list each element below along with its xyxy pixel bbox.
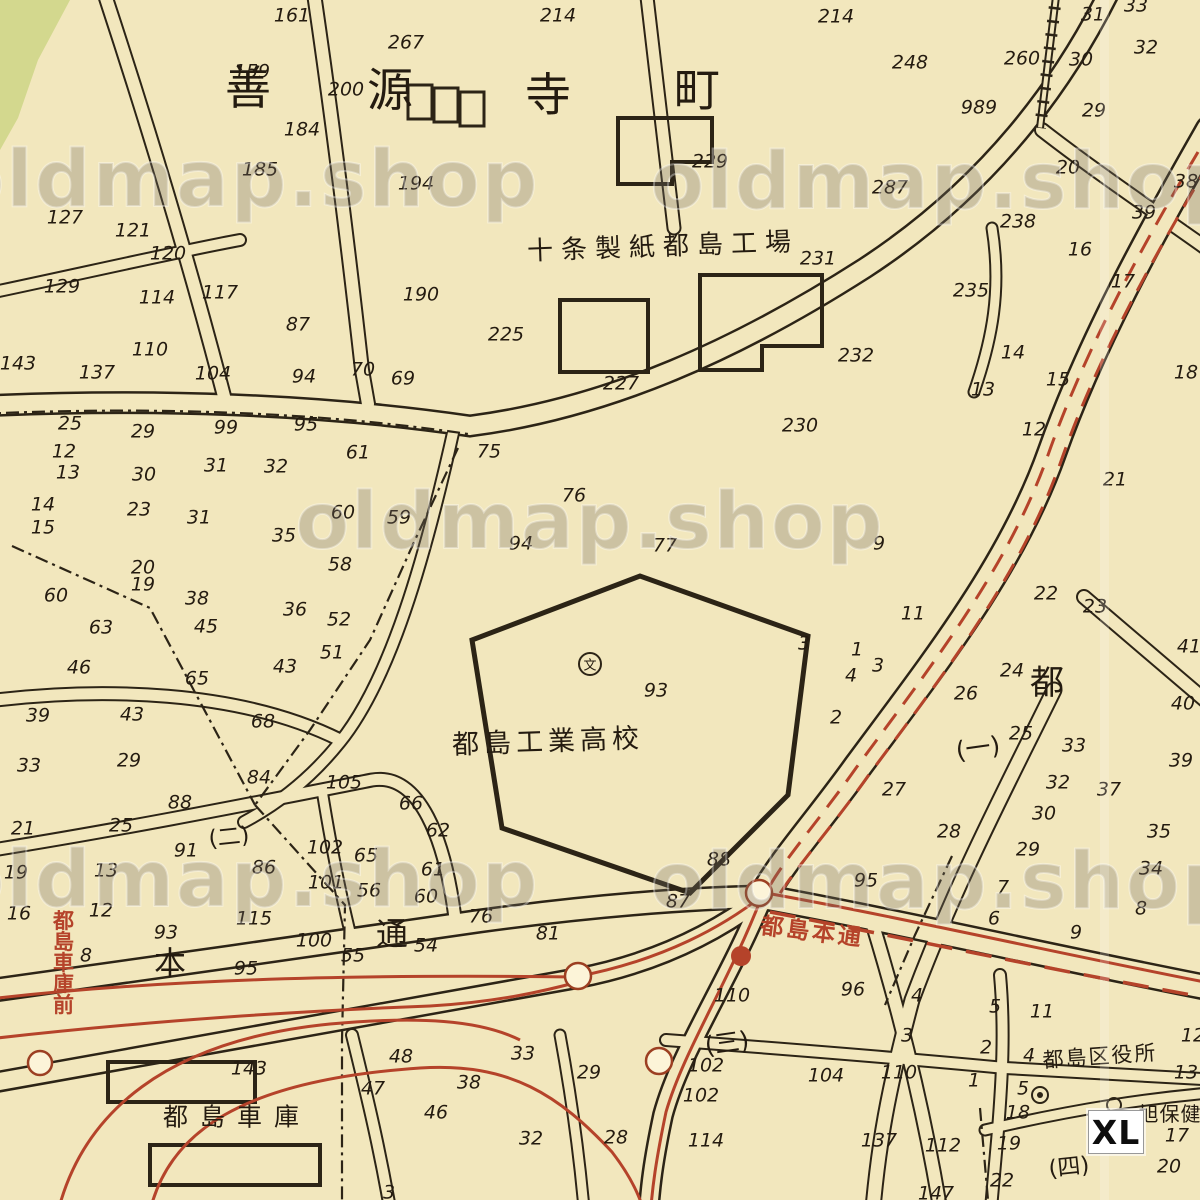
lot-number: 143 (231, 1060, 267, 1079)
lot-number: 96 (841, 981, 865, 1000)
lot-number: 81 (536, 925, 560, 944)
lot-number: 12 (52, 443, 76, 462)
lot-number: 230 (782, 417, 818, 436)
lot-number: 4 (1023, 1047, 1035, 1066)
lot-number: 102 (683, 1087, 719, 1106)
lot-number: 105 (326, 774, 362, 793)
lot-number: 27 (882, 781, 906, 800)
lot-number: 235 (953, 282, 989, 301)
place-label: 文 (583, 660, 596, 673)
lot-number: 110 (714, 987, 750, 1006)
lot-number: 24 (1000, 662, 1024, 681)
lot-number: 16 (1068, 241, 1092, 260)
lot-number: 63 (89, 619, 113, 638)
lot-number: 93 (644, 682, 668, 701)
lot-number: 20 (1157, 1158, 1181, 1177)
lot-number: 19 (131, 576, 155, 595)
lot-number: 110 (132, 341, 168, 360)
lot-number: 68 (251, 713, 275, 732)
lot-number: 110 (881, 1064, 917, 1083)
lot-number: 70 (351, 361, 375, 380)
lot-number: 28 (604, 1129, 628, 1148)
place-label: 都島工業高校 (452, 725, 645, 759)
lot-number: 66 (399, 795, 423, 814)
lot-number: 3 (383, 1184, 395, 1200)
lot-number: 30 (1069, 51, 1093, 70)
place-label: 寺 (525, 72, 571, 118)
lot-number: 23 (127, 501, 151, 520)
lot-number: 1 (851, 641, 863, 660)
lot-number: 100 (296, 932, 332, 951)
size-badge: XL (1088, 1110, 1144, 1154)
place-label: 旭保健 (1139, 1104, 1200, 1124)
lot-number: 4 (845, 667, 857, 686)
lot-number: 69 (391, 370, 415, 389)
lot-number: 13 (971, 381, 995, 400)
lot-number: 129 (44, 278, 80, 297)
lot-number: 14 (1001, 344, 1025, 363)
lot-number: 95 (294, 416, 318, 435)
lot-number: 30 (1032, 805, 1056, 824)
lot-number: 15 (31, 519, 55, 538)
lot-number: 214 (818, 8, 854, 27)
lot-number: 84 (247, 769, 271, 788)
place-label: (三) (703, 1028, 751, 1059)
place-label: 善 (225, 65, 271, 111)
lot-number: 33 (1062, 737, 1086, 756)
lot-number: 17 (1111, 273, 1135, 292)
lot-number: 29 (577, 1064, 601, 1083)
lot-number: 200 (328, 81, 364, 100)
lot-number: 40 (1171, 695, 1195, 714)
lot-number: 11 (901, 605, 925, 624)
lot-number: 95 (234, 960, 258, 979)
lot-number: 267 (388, 34, 424, 53)
lot-number: 39 (1169, 752, 1193, 771)
lot-number: 33 (17, 757, 41, 776)
lot-number: 137 (861, 1132, 897, 1151)
place-label: 本 (154, 947, 186, 979)
lot-number: 94 (292, 368, 316, 387)
lot-number: 39 (26, 707, 50, 726)
watermark: oldmap.shop (651, 843, 1200, 921)
lot-number: 112 (925, 1137, 961, 1156)
lot-number: 120 (150, 245, 186, 264)
lot-number: 41 (1177, 638, 1200, 657)
place-label: 都 (1030, 666, 1064, 700)
lot-number: 19 (997, 1135, 1021, 1154)
lot-number: 60 (44, 587, 68, 606)
map-labels-layer: 1611591841851271211201291141178711014313… (0, 0, 1200, 1200)
lot-number: 3 (798, 635, 810, 654)
watermark: oldmap.shop (0, 841, 539, 919)
old-map-scan: 1611591841851271211201291141178711014313… (0, 0, 1200, 1200)
lot-number: 54 (414, 937, 438, 956)
place-label: 都島車庫 (163, 1105, 311, 1130)
lot-number: 2 (830, 709, 842, 728)
lot-number: 32 (1046, 774, 1070, 793)
place-label: (四) (1047, 1154, 1090, 1181)
lot-number: 214 (540, 7, 576, 26)
lot-number: 161 (274, 7, 310, 26)
lot-number: 29 (131, 423, 155, 442)
lot-number: 26 (954, 685, 978, 704)
lot-number: 33 (1124, 0, 1148, 16)
lot-number: 99 (214, 419, 238, 438)
lot-number: 190 (403, 286, 439, 305)
lot-number: 114 (688, 1132, 724, 1151)
lot-number: 46 (67, 659, 91, 678)
lot-number: 12 (1181, 1027, 1200, 1046)
lot-number: 137 (79, 364, 115, 383)
lot-number: 13 (1174, 1064, 1198, 1083)
lot-number: 43 (273, 658, 297, 677)
lot-number: 2 (980, 1039, 992, 1058)
place-label: (一) (954, 733, 1002, 764)
lot-number: 5 (1017, 1080, 1029, 1099)
lot-number: 38 (457, 1074, 481, 1093)
lot-number: 117 (202, 284, 238, 303)
watermark: oldmap.shop (651, 143, 1200, 221)
lot-number: 104 (195, 365, 231, 384)
lot-number: 31 (204, 457, 228, 476)
lot-number: 35 (272, 527, 296, 546)
watermark: oldmap.shop (0, 141, 539, 219)
lot-number: 4 (911, 987, 923, 1006)
lot-number: 14 (31, 496, 55, 515)
tram-label: 都島車庫前 (52, 910, 73, 1015)
lot-number: 25 (58, 415, 82, 434)
lot-number: 61 (346, 444, 370, 463)
lot-number: 55 (341, 947, 365, 966)
lot-number: 13 (56, 464, 80, 483)
lot-number: 225 (488, 326, 524, 345)
lot-number: 25 (1009, 725, 1033, 744)
lot-number: 3 (901, 1027, 913, 1046)
lot-number: 29 (117, 752, 141, 771)
lot-number: 232 (838, 347, 874, 366)
lot-number: 36 (283, 601, 307, 620)
lot-number: 989 (961, 99, 997, 118)
place-label: 源 (367, 67, 413, 113)
lot-number: 22 (990, 1172, 1014, 1191)
lot-number: 15 (1046, 371, 1070, 390)
lot-number: 45 (194, 618, 218, 637)
lot-number: 5 (989, 998, 1001, 1017)
lot-number: 52 (327, 611, 351, 630)
watermark: oldmap.shop (296, 483, 885, 561)
lot-number: 25 (109, 817, 133, 836)
lot-number: 32 (264, 458, 288, 477)
lot-number: 32 (1134, 39, 1158, 58)
place-label: 十条製紙都島工場 (527, 229, 800, 264)
lot-number: 43 (120, 706, 144, 725)
lot-number: 3 (872, 657, 884, 676)
lot-number: 38 (185, 590, 209, 609)
lot-number: 30 (132, 466, 156, 485)
lot-number: 12 (1022, 421, 1046, 440)
paper-crease (1100, 0, 1109, 1200)
lot-number: 260 (1004, 50, 1040, 69)
lot-number: 1 (968, 1072, 980, 1091)
lot-number: 147 (918, 1185, 954, 1200)
lot-number: 114 (139, 289, 175, 308)
lot-number: 32 (519, 1130, 543, 1149)
lot-number: 47 (361, 1080, 385, 1099)
lot-number: 248 (892, 54, 928, 73)
lot-number: 65 (185, 670, 209, 689)
lot-number: 17 (1165, 1127, 1189, 1146)
lot-number: 104 (808, 1067, 844, 1086)
lot-number: 8 (80, 947, 92, 966)
lot-number: 51 (320, 644, 344, 663)
lot-number: 18 (1006, 1104, 1030, 1123)
lot-number: 11 (1030, 1003, 1054, 1022)
lot-number: 88 (168, 794, 192, 813)
lot-number: 93 (154, 924, 178, 943)
lot-number: 48 (389, 1048, 413, 1067)
lot-number: 18 (1174, 364, 1198, 383)
lot-number: 227 (603, 375, 639, 394)
lot-number: 22 (1034, 585, 1058, 604)
lot-number: 143 (0, 355, 36, 374)
lot-number: 33 (511, 1045, 535, 1064)
lot-number: 31 (187, 509, 211, 528)
place-label: 町 (674, 67, 720, 113)
lot-number: 75 (477, 443, 501, 462)
lot-number: 231 (800, 250, 836, 269)
lot-number: 87 (286, 316, 310, 335)
lot-number: 46 (424, 1104, 448, 1123)
